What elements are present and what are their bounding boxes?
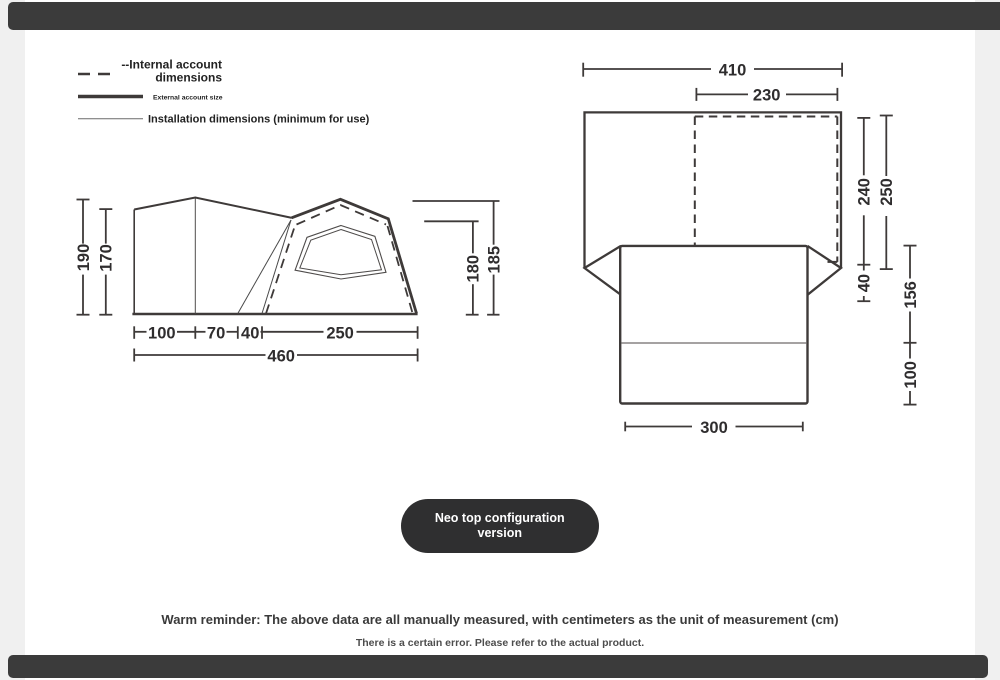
- svg-text:156: 156: [902, 281, 920, 309]
- svg-text:100: 100: [902, 361, 920, 389]
- svg-text:190: 190: [75, 244, 93, 272]
- svg-text:40: 40: [856, 274, 874, 292]
- svg-text:dimensions: dimensions: [155, 71, 222, 85]
- svg-text:40: 40: [241, 324, 259, 342]
- svg-text:300: 300: [700, 419, 728, 437]
- svg-text:250: 250: [326, 324, 354, 342]
- svg-text:230: 230: [753, 87, 781, 105]
- svg-text:410: 410: [719, 61, 747, 79]
- svg-text:100: 100: [148, 324, 176, 342]
- svg-text:185: 185: [485, 246, 503, 274]
- svg-text:180: 180: [465, 255, 483, 283]
- svg-text:170: 170: [98, 244, 116, 272]
- svg-text:460: 460: [267, 348, 295, 366]
- svg-text:External account size: External account size: [153, 95, 223, 102]
- svg-text:--Internal account: --Internal account: [121, 58, 222, 72]
- svg-text:240: 240: [856, 178, 874, 206]
- svg-text:70: 70: [207, 324, 225, 342]
- svg-text:Installation dimensions (minim: Installation dimensions (minimum for use…: [148, 114, 370, 126]
- svg-text:250: 250: [878, 178, 896, 206]
